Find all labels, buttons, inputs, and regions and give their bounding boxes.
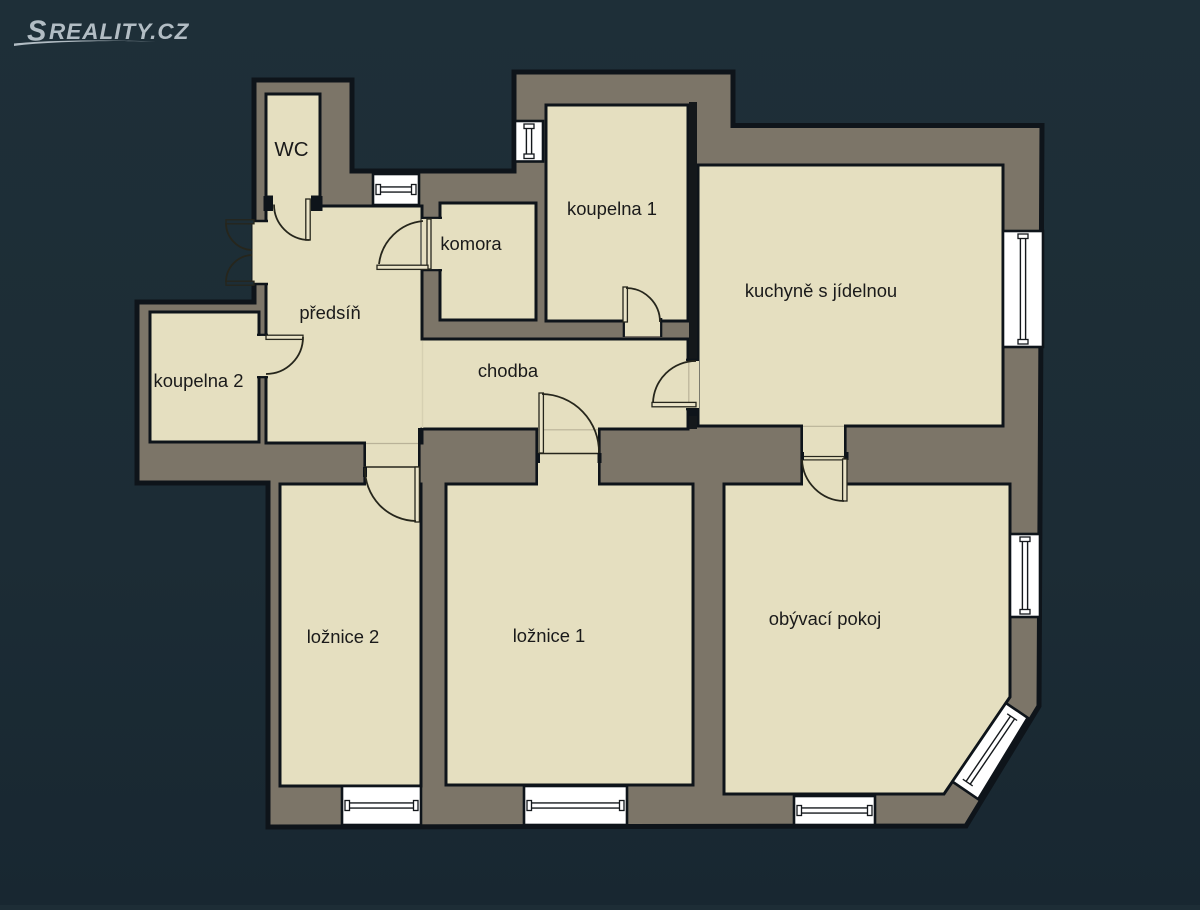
- svg-text:koupelna 1: koupelna 1: [567, 198, 657, 219]
- svg-text:REALITY.CZ: REALITY.CZ: [49, 19, 190, 44]
- svg-text:S: S: [27, 16, 47, 48]
- svg-text:předsíň: předsíň: [299, 302, 360, 323]
- svg-text:WC: WC: [274, 138, 308, 161]
- svg-text:chodba: chodba: [478, 360, 539, 381]
- svg-text:ložnice 2: ložnice 2: [307, 626, 380, 647]
- svg-text:obývací pokoj: obývací pokoj: [769, 608, 881, 629]
- svg-text:ložnice 1: ložnice 1: [513, 625, 586, 646]
- svg-text:komora: komora: [440, 233, 502, 254]
- svg-text:koupelna 2: koupelna 2: [154, 370, 244, 391]
- svg-text:kuchyně s jídelnou: kuchyně s jídelnou: [745, 280, 897, 301]
